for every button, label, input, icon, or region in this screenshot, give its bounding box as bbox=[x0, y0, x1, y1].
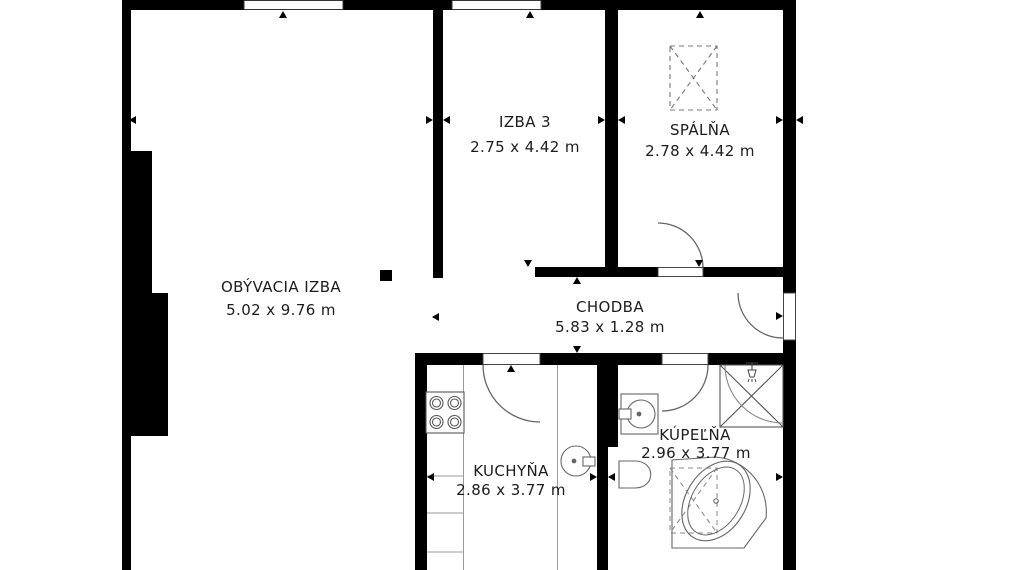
room-label-izba-3: IZBA 3 bbox=[499, 113, 551, 131]
bathroom-door-arc bbox=[662, 365, 708, 411]
wall-chodba-bottom-c bbox=[708, 353, 783, 365]
entry-door-leaf bbox=[784, 293, 796, 340]
room-label-obyvacia-izba: OBÝVACIA IZBA bbox=[221, 278, 341, 296]
room-label-kupelna: KÚPEĽŇA bbox=[659, 426, 731, 444]
shower-head-icon bbox=[746, 363, 758, 382]
room-dims-chodba: 5.83 x 1.28 m bbox=[555, 318, 665, 336]
wall-kitchen-bath-divider-thin bbox=[597, 447, 608, 570]
wall-spalna-bottom-a bbox=[618, 267, 658, 277]
room-dims-obyvacia-izba: 5.02 x 9.76 m bbox=[226, 301, 336, 319]
room-dims-kuchyna: 2.86 x 3.77 m bbox=[456, 481, 566, 499]
wardrobe-icon bbox=[670, 46, 717, 110]
room-label-spalna: SPÁLŇA bbox=[670, 121, 730, 139]
bedroom-door-leaf bbox=[658, 268, 703, 277]
wall-living-izba3-divider bbox=[433, 10, 443, 278]
bathtub-icon bbox=[668, 449, 767, 554]
kitchen-sink-icon bbox=[561, 446, 595, 476]
dimension-markers bbox=[129, 11, 803, 481]
wall-left bbox=[122, 0, 131, 570]
wall-izba3-spalna-divider bbox=[605, 10, 618, 267]
wall-left-pilaster-1 bbox=[131, 151, 152, 293]
floor-plan: OBÝVACIA IZBA 5.02 x 9.76 m IZBA 3 2.75 … bbox=[0, 0, 1011, 570]
room-dims-izba-3: 2.75 x 4.42 m bbox=[470, 138, 580, 156]
stove-icon bbox=[426, 392, 464, 433]
pillar bbox=[380, 270, 392, 281]
wall-top-3 bbox=[541, 0, 796, 10]
kitchen-door-leaf bbox=[483, 354, 540, 365]
room-dims-kupelna: 2.96 x 3.77 m bbox=[641, 444, 751, 462]
room-dims-spalna: 2.78 x 4.42 m bbox=[645, 142, 755, 160]
window-izba3 bbox=[452, 1, 541, 10]
room-label-kuchyna: KUCHYŇA bbox=[473, 462, 549, 480]
wall-top-1 bbox=[122, 0, 244, 10]
kitchen-door-arc bbox=[483, 365, 540, 422]
wall-kitchen-left bbox=[415, 353, 427, 570]
room-label-chodba: CHODBA bbox=[576, 298, 644, 316]
wall-top-2 bbox=[343, 0, 452, 10]
window-living-room bbox=[244, 1, 343, 10]
wall-kitchen-bath-divider-thick bbox=[597, 353, 618, 447]
wall-right-upper bbox=[783, 10, 796, 293]
wall-spalna-bottom-b bbox=[703, 267, 783, 277]
washbasin-icon bbox=[619, 394, 658, 434]
wall-right-lower bbox=[783, 340, 796, 570]
bathroom-door-leaf bbox=[662, 354, 708, 365]
wall-left-pilaster-2 bbox=[131, 293, 168, 436]
wall-chodba-top-left bbox=[535, 267, 618, 277]
toilet-icon bbox=[619, 461, 651, 488]
